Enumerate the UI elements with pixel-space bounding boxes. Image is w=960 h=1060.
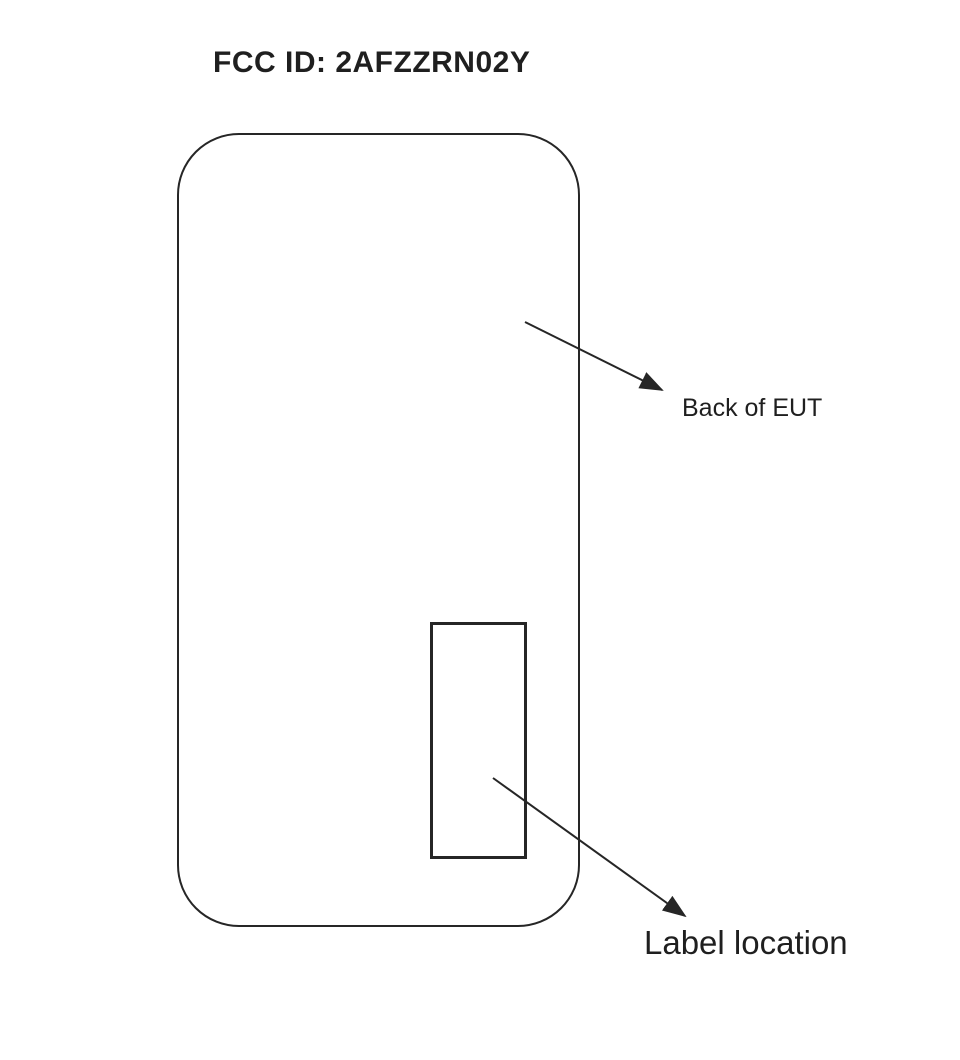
back-of-eut-label: Back of EUT [682,394,822,423]
fcc-id-title: FCC ID: 2AFZZRN02Y [213,46,530,80]
label-location-label: Label location [644,924,848,962]
fcc-label-diagram-page: FCC ID: 2AFZZRN02Y Back of EUT Label loc… [0,0,960,1060]
label-location-rect [430,622,527,859]
